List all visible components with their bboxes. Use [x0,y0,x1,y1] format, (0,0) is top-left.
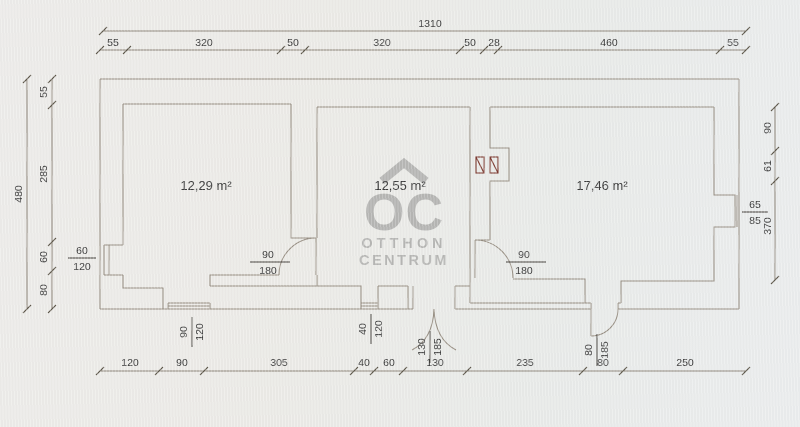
dim-top-seg: 50 [464,37,476,49]
floor-plan-drawing: OC OTTHON CENTRUM [0,0,800,427]
dim-bottom-seg: 90 [176,357,188,369]
dim-top-seg: 55 [107,37,119,49]
door-height: 185 [432,338,444,356]
door-width: 90 [262,249,274,261]
dim-bottom-seg: 120 [121,357,139,369]
window-width: 60 [76,245,88,257]
bottom-window-mid-size-label: 40 120 [357,314,385,344]
door-height: 185 [599,341,611,359]
dim-bottom-seg: 130 [426,357,444,369]
dim-left-total: 480 [13,185,25,203]
dim-right-seg: 61 [762,160,774,172]
bottom-window-left-size-label: 90 120 [178,317,206,347]
door-room3 [475,240,513,278]
dim-bottom-seg: 250 [676,357,694,369]
watermark-line1: OTTHON [361,236,446,252]
room1-area-label: 12,29 m² [180,178,232,193]
door-height: 180 [515,265,533,277]
door-bottom-right [591,309,618,336]
dim-left-seg: 80 [38,284,50,296]
dim-top-seg: 50 [287,37,299,49]
dim-left-seg: 60 [38,251,50,263]
dim-top-seg: 320 [373,37,391,49]
window-width: 40 [357,323,369,335]
door-width: 80 [583,344,595,356]
door-room1 [279,238,316,275]
door-height: 180 [259,265,277,277]
dim-top-seg: 55 [727,37,739,49]
dim-right-seg: 370 [762,217,774,235]
flue-icon-diagonal [490,157,498,173]
left-window-size-label: 60 120 [68,245,96,273]
window-width: 90 [178,326,190,338]
door-arc [279,238,316,275]
dim-left-seg: 285 [38,165,50,183]
dim-bottom-seg: 40 [358,357,370,369]
room2-area-label: 12,55 m² [374,178,426,193]
door-width: 130 [416,338,428,356]
dim-left-seg: 55 [38,86,50,98]
window-height: 120 [373,320,385,338]
room-area-labels: 12,29 m² 12,55 m² 17,46 m² [180,178,628,193]
door-width: 90 [518,249,530,261]
window-height: 120 [194,323,206,341]
room3-area-label: 17,46 m² [576,178,628,193]
dim-top-total: 1310 [418,18,442,30]
door-arc [591,309,618,336]
window-height: 120 [73,261,91,273]
dim-top-seg: 28 [488,37,500,49]
dim-top-seg: 460 [600,37,618,49]
window-width: 65 [749,199,761,211]
room1-door-size-label: 90 180 [250,249,290,277]
dim-bottom-seg: 60 [383,357,395,369]
dim-top-seg: 320 [195,37,213,49]
room3-door-size-label: 90 180 [506,249,546,277]
dim-bottom-seg: 305 [270,357,288,369]
dim-right-seg: 90 [762,122,774,134]
watermark-line2: CENTRUM [359,253,449,269]
flue-symbols [476,157,498,173]
flue-icon-diagonal [476,157,484,173]
scanned-floor-plan-page: OC OTTHON CENTRUM [0,0,800,427]
window-height: 85 [749,215,761,227]
door-arc [475,240,513,278]
dim-bottom-seg: 235 [516,357,534,369]
